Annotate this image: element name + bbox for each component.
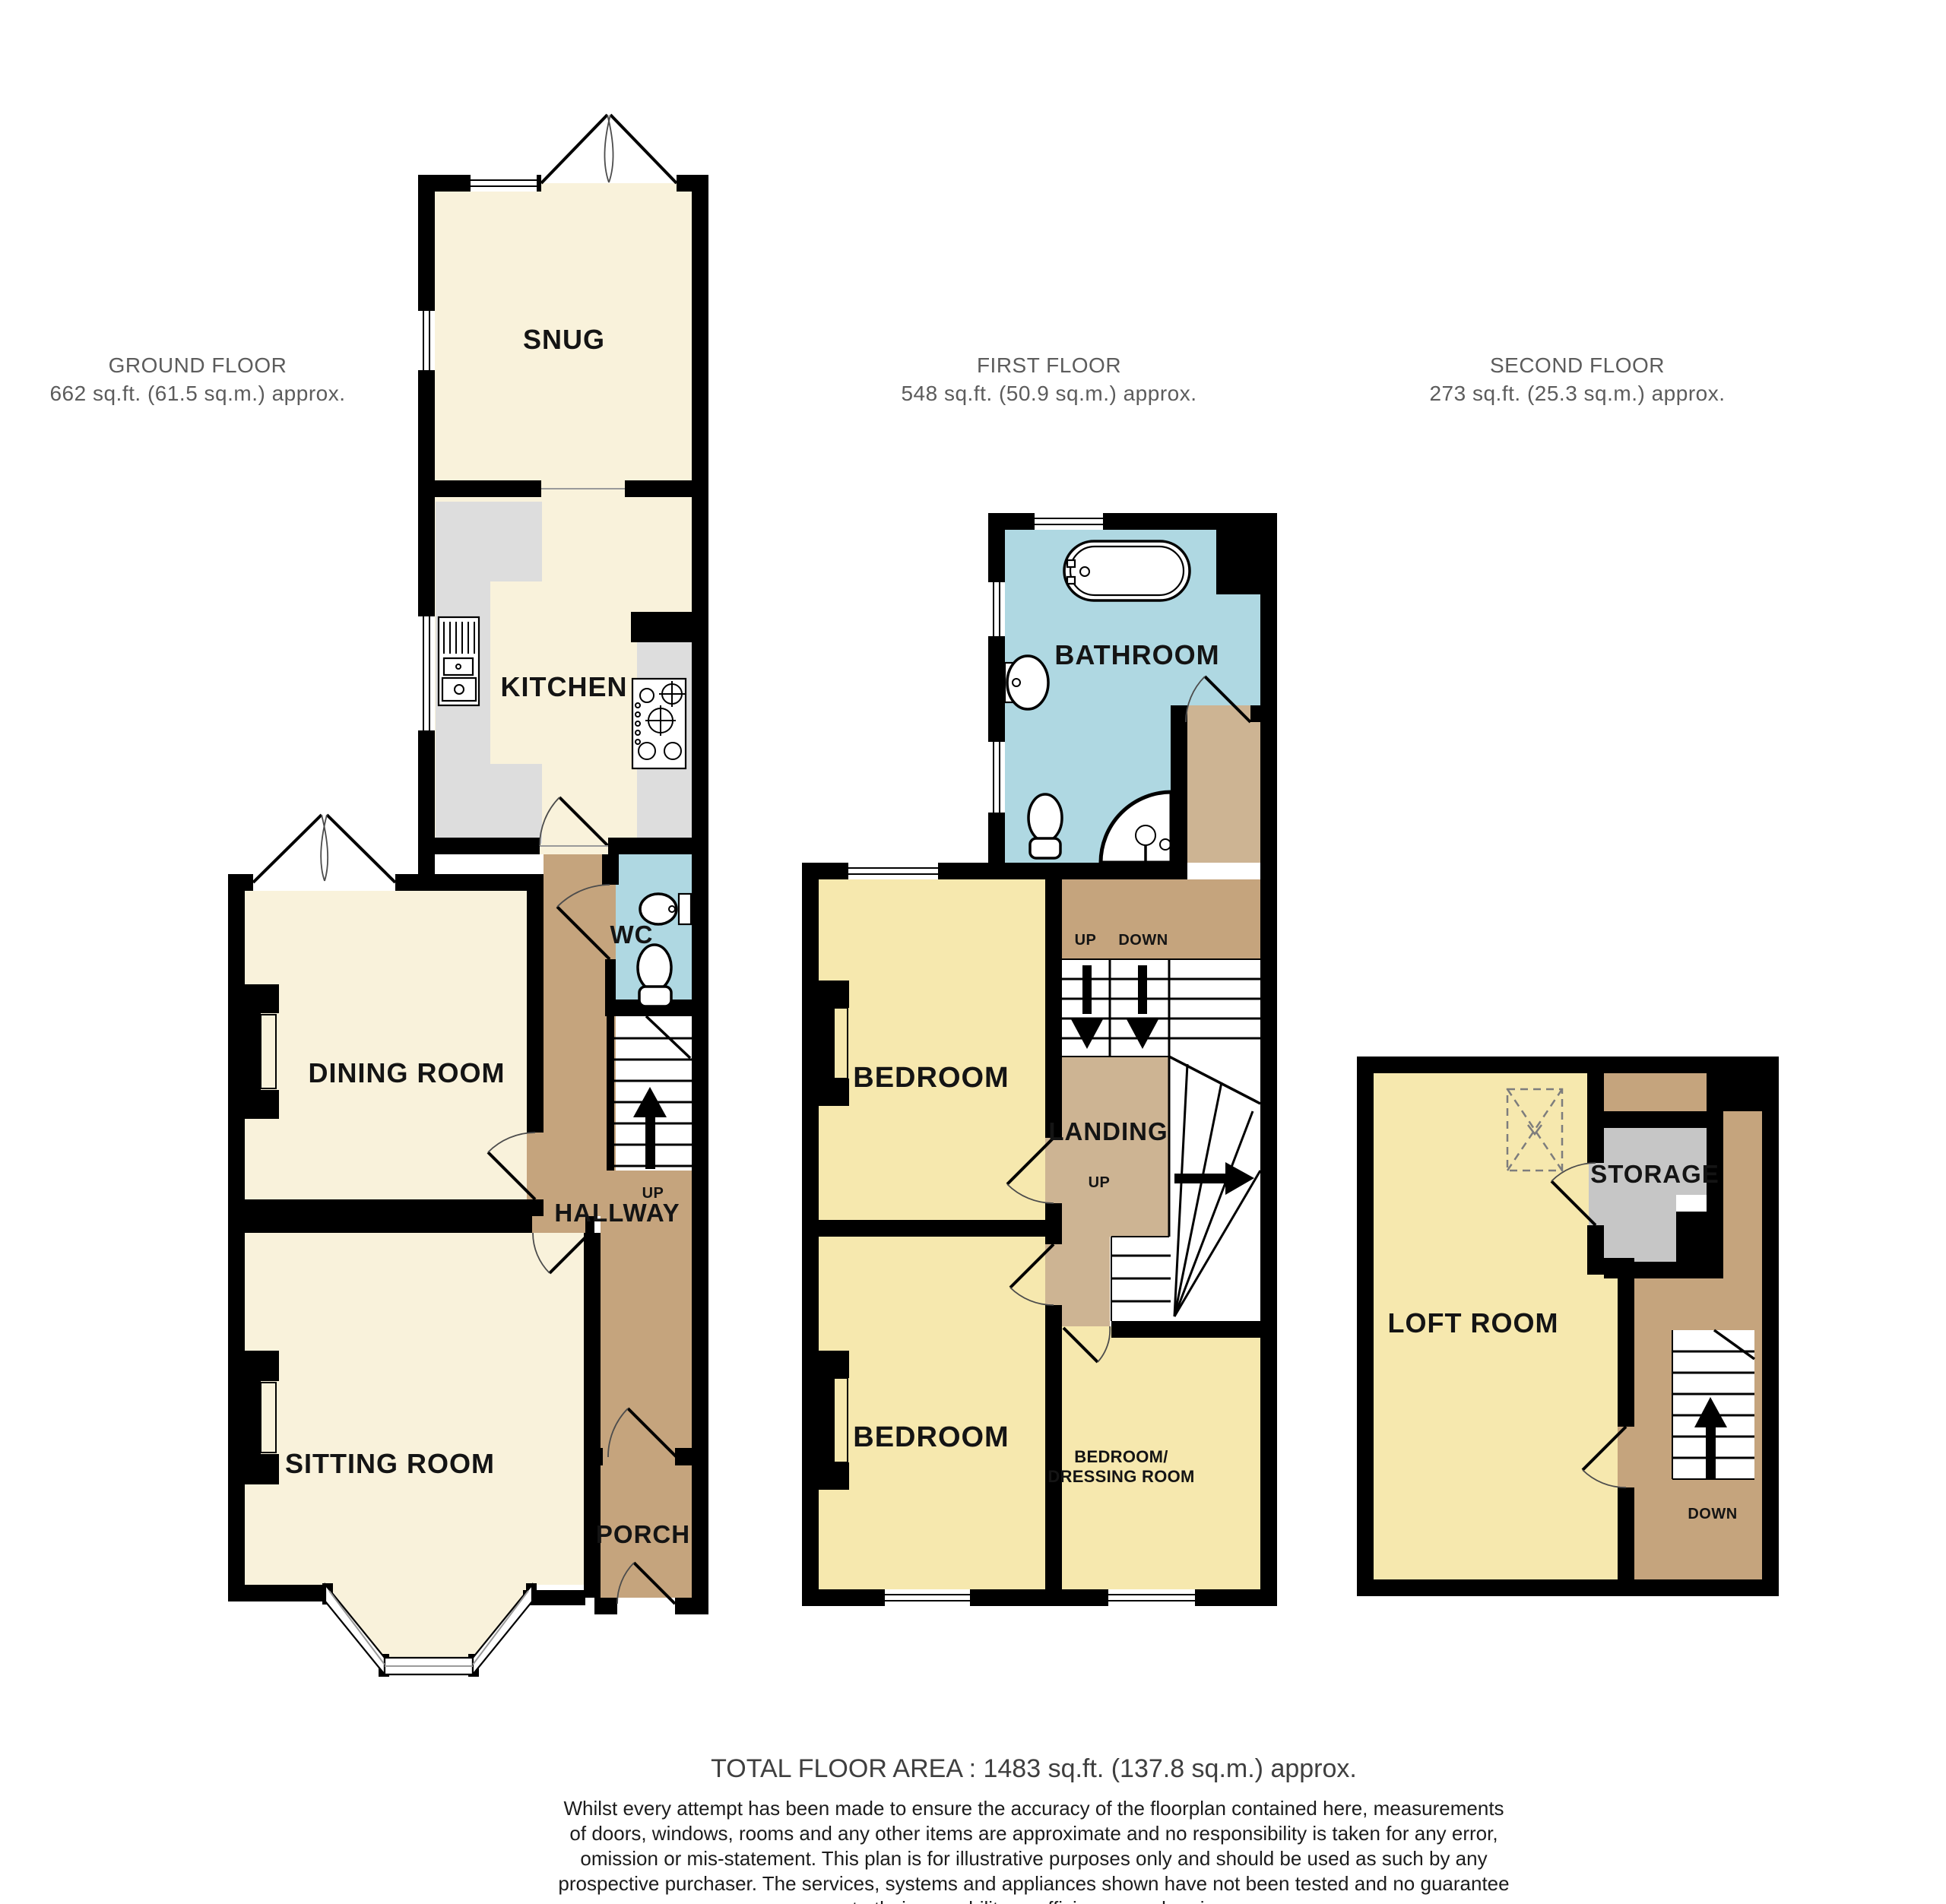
disclaimer-line-5: as to their operability or efficiency ca… (441, 1896, 1627, 1904)
bathroom-toilet (1028, 794, 1062, 858)
second-floor-header: SECOND FLOOR 273 sq.ft. (25.3 sq.m.) app… (1425, 351, 1729, 407)
chimney-breast-dining (245, 984, 279, 1119)
bathroom-label: BATHROOM (1054, 639, 1219, 670)
second-floor-plan: LOFT ROOM STORAGE DOWN (1345, 1049, 1786, 1604)
landing-label: LANDING (1048, 1117, 1168, 1145)
second-down-label: DOWN (1688, 1506, 1737, 1522)
disclaimer-line-2: of doors, windows, rooms and any other i… (441, 1821, 1627, 1846)
ground-floor-plan: SNUG KITCHEN WC DINING ROOM UP HALLWAY S… (213, 91, 745, 1703)
loft-room-label: LOFT ROOM (1388, 1307, 1559, 1339)
wc-label: WC (610, 920, 654, 949)
landing-up-label: UP (1089, 1174, 1111, 1191)
floorplan-canvas: GROUND FLOOR 662 sq.ft. (61.5 sq.m.) app… (0, 0, 1946, 1904)
stairs-down-label: DOWN (1118, 932, 1168, 949)
bathtub (1064, 541, 1190, 600)
sitting-room-label: SITTING ROOM (285, 1448, 495, 1479)
chimney-breast-sitting (245, 1351, 279, 1484)
first-floor-title: FIRST FLOOR (897, 351, 1201, 379)
storage-label: STORAGE (1590, 1160, 1719, 1188)
stairs-up-label: UP (1075, 932, 1097, 949)
chimney-breast-bedroom-back (819, 1351, 849, 1490)
bathroom-basin (1005, 656, 1048, 709)
dining-room-label: DINING ROOM (309, 1057, 506, 1088)
first-floor-area: 548 sq.ft. (50.9 sq.m.) approx. (897, 379, 1201, 407)
first-floor-plan: BATHROOM BEDROOM UP DOWN LANDING UP BEDR… (791, 494, 1292, 1634)
snug-label: SNUG (523, 324, 605, 355)
kitchen-label: KITCHEN (501, 671, 628, 702)
disclaimer-line-3: omission or mis-statement. This plan is … (441, 1846, 1627, 1871)
bedroom-front-label: BEDROOM (853, 1062, 1009, 1094)
dressing-room-label-2: DRESSING ROOM (1047, 1467, 1194, 1486)
chimney-breast-bedroom-front (819, 981, 849, 1106)
wc-basin (640, 894, 691, 924)
wc-toilet (638, 945, 671, 1006)
bedroom-back-label: BEDROOM (853, 1421, 1009, 1453)
dressing-room-label-1: BEDROOM/ (1074, 1447, 1168, 1466)
total-floor-area: TOTAL FLOOR AREA : 1483 sq.ft. (137.8 sq… (441, 1754, 1627, 1784)
first-floor-header: FIRST FLOOR 548 sq.ft. (50.9 sq.m.) appr… (897, 351, 1201, 407)
disclaimer-line-4: prospective purchaser. The services, sys… (441, 1871, 1627, 1896)
second-floor-area: 273 sq.ft. (25.3 sq.m.) approx. (1425, 379, 1729, 407)
disclaimer-line-1: Whilst every attempt has been made to en… (441, 1796, 1627, 1821)
hob (632, 679, 686, 768)
hallway-label: HALLWAY (554, 1199, 680, 1227)
footer: TOTAL FLOOR AREA : 1483 sq.ft. (137.8 sq… (441, 1754, 1627, 1904)
kitchen-sink (439, 617, 479, 705)
second-floor-title: SECOND FLOOR (1425, 351, 1729, 379)
second-staircase (1672, 1330, 1754, 1479)
porch-label: PORCH (596, 1520, 690, 1548)
